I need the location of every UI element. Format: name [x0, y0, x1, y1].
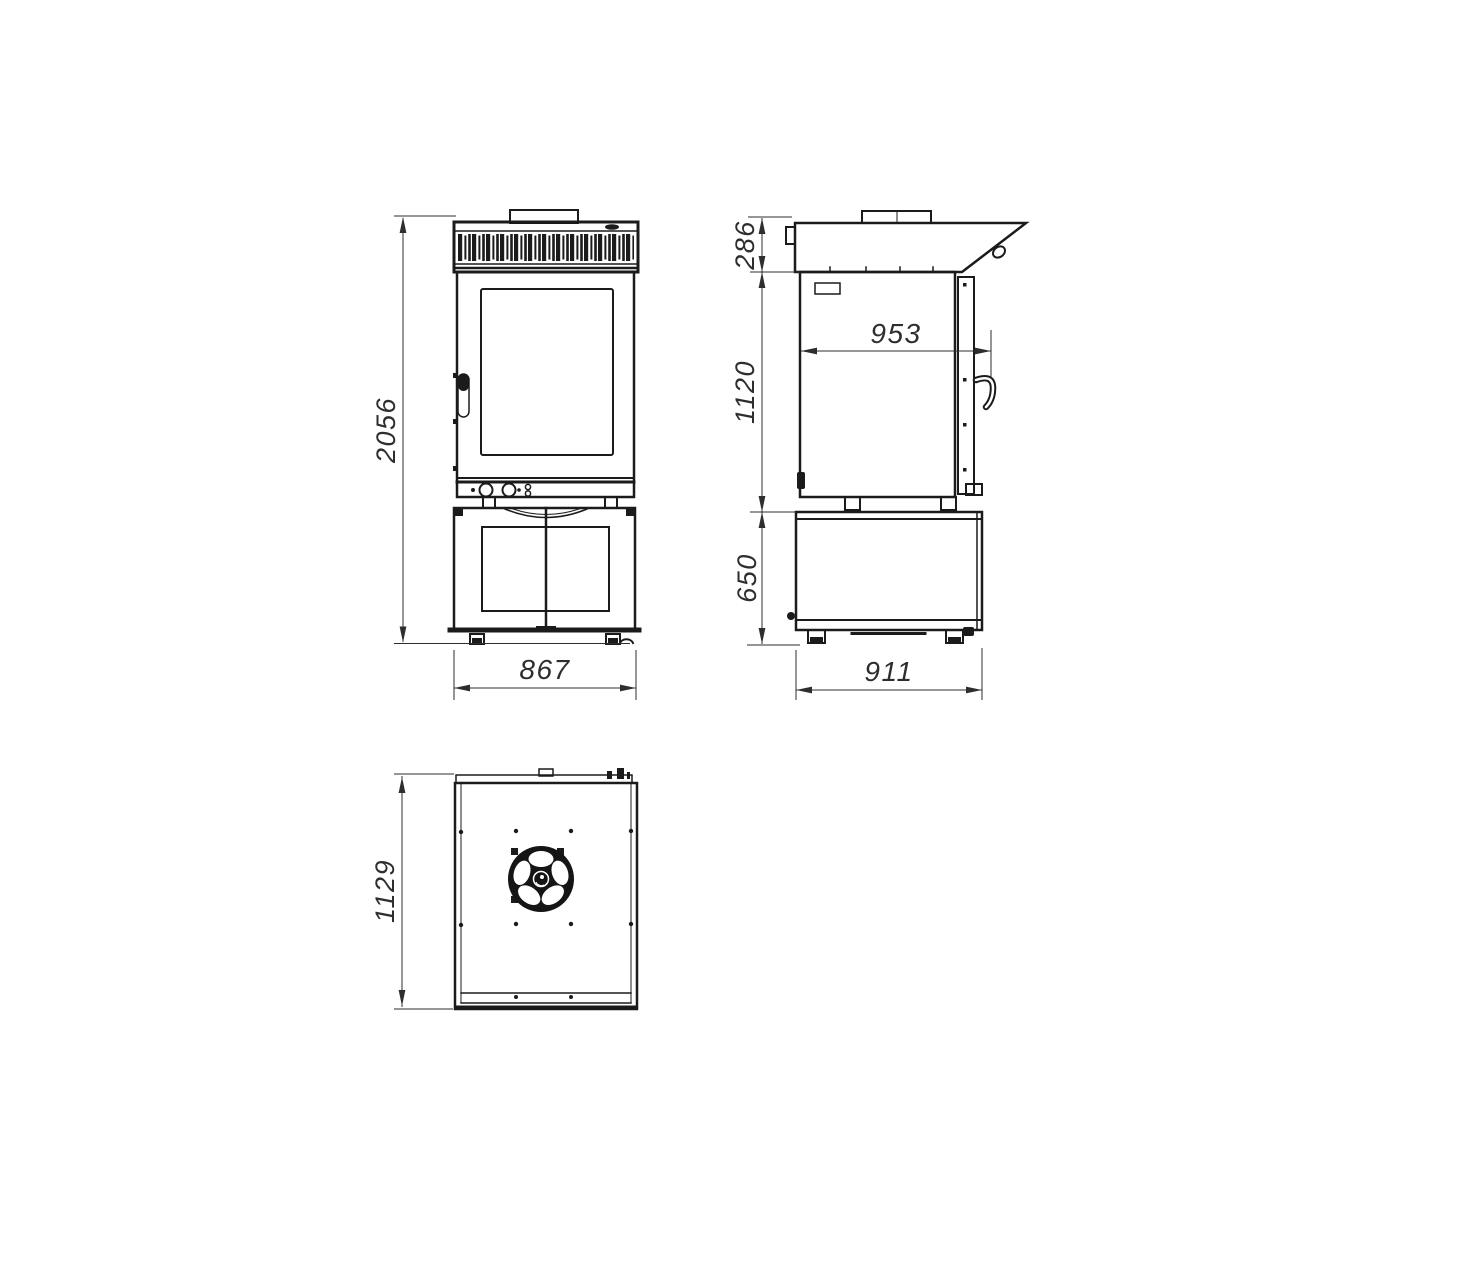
- dim-text-867: 867: [519, 654, 570, 685]
- drawing-sheet: 2056 867: [0, 0, 1467, 1284]
- dim-text-286: 286: [730, 220, 760, 271]
- stand-knob: [963, 627, 974, 636]
- screw-dot: [459, 923, 463, 927]
- screw-dot: [569, 995, 573, 999]
- side-view: 286 1120 650 953 911: [730, 211, 1026, 700]
- side-chimney: [862, 211, 931, 223]
- screw-dot: [514, 995, 518, 999]
- front-stand: [450, 508, 639, 644]
- side-hood: [786, 223, 1026, 272]
- side-door-handle: [976, 378, 993, 407]
- dim-side-overall-depth: 911: [796, 648, 982, 700]
- pilot-light: [525, 491, 530, 496]
- screw-dot: [629, 829, 633, 833]
- vent-grille: [454, 222, 638, 272]
- screw-dot: [569, 922, 573, 926]
- dim-text-953: 953: [870, 318, 921, 349]
- control-knob: [480, 484, 493, 497]
- side-door-edge: [958, 277, 974, 494]
- oven-foot: [845, 497, 860, 510]
- grille-slats: [458, 234, 634, 261]
- door-window: [481, 289, 613, 455]
- dim-top-depth: 1129: [370, 774, 454, 1009]
- screw-dot: [629, 922, 633, 926]
- door-handle: [458, 374, 469, 417]
- side-hinge: [797, 472, 805, 489]
- hinge-block: [626, 508, 635, 516]
- fan-icon: [508, 846, 574, 912]
- indicator-dot: [471, 488, 475, 492]
- rating-plate: [815, 283, 840, 294]
- oven-foot: [941, 497, 956, 510]
- side-stand: [787, 512, 982, 643]
- dim-front-overall-height: 2056: [371, 216, 630, 644]
- drain-detail: [620, 639, 633, 643]
- dim-text-650: 650: [732, 553, 762, 603]
- top-view: 1129: [370, 768, 637, 1009]
- stand-pin: [787, 612, 795, 620]
- front-view: 2056 867: [371, 210, 639, 700]
- pilot-light: [525, 484, 530, 489]
- dim-text-2056: 2056: [371, 397, 401, 464]
- hood-bracket: [786, 227, 795, 244]
- front-oven-feet: [483, 497, 617, 508]
- indicator-dot: [517, 488, 521, 492]
- dim-side-heights: 286 1120 650: [730, 217, 800, 645]
- screw-dot: [569, 829, 573, 833]
- technical-drawing: 2056 867: [0, 0, 1467, 1284]
- dim-front-overall-width: 867: [454, 650, 636, 700]
- hinge-mark: [453, 419, 457, 424]
- hinge-mark: [453, 373, 457, 378]
- front-oven-body: [453, 272, 634, 497]
- control-knob: [503, 484, 516, 497]
- screw-dot: [514, 922, 518, 926]
- dim-text-911: 911: [864, 656, 913, 687]
- dim-text-1120: 1120: [730, 360, 760, 424]
- screw-dot: [514, 829, 518, 833]
- dim-text-1129: 1129: [370, 859, 400, 923]
- control-panel: [457, 478, 634, 497]
- dim-side-inner-depth: 953: [801, 318, 991, 378]
- hinge-mark: [453, 466, 457, 471]
- side-oven-body: [797, 272, 993, 510]
- hinge-block: [454, 508, 463, 516]
- hood-hook: [991, 244, 1007, 260]
- grille-badge: [605, 224, 619, 230]
- screw-dot: [459, 830, 463, 834]
